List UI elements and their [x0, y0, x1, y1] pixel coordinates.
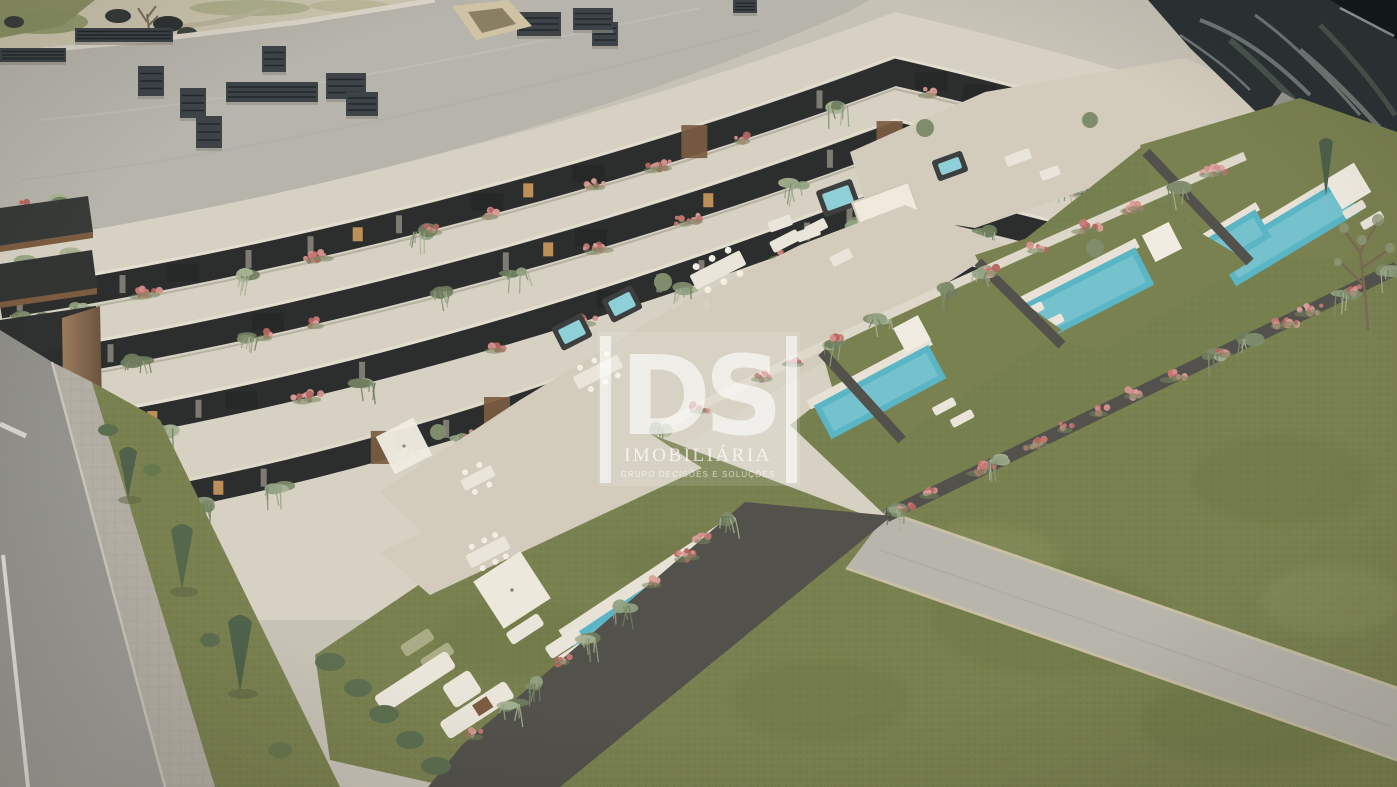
architectural-render: DS IMOBILIÁRIA GRUPO DECISÕES E SOLUÇÕES — [0, 0, 1397, 787]
watermark-brand: IMOBILIÁRIA — [624, 444, 772, 466]
watermark-logo: DS — [620, 332, 777, 460]
watermark-right-bar — [786, 336, 797, 483]
watermark-left-bar — [600, 336, 611, 483]
watermark-tagline: GRUPO DECISÕES E SOLUÇÕES — [621, 470, 776, 479]
watermark: DS IMOBILIÁRIA GRUPO DECISÕES E SOLUÇÕES — [598, 332, 800, 486]
scene-svg: DS IMOBILIÁRIA GRUPO DECISÕES E SOLUÇÕES — [0, 0, 1397, 787]
